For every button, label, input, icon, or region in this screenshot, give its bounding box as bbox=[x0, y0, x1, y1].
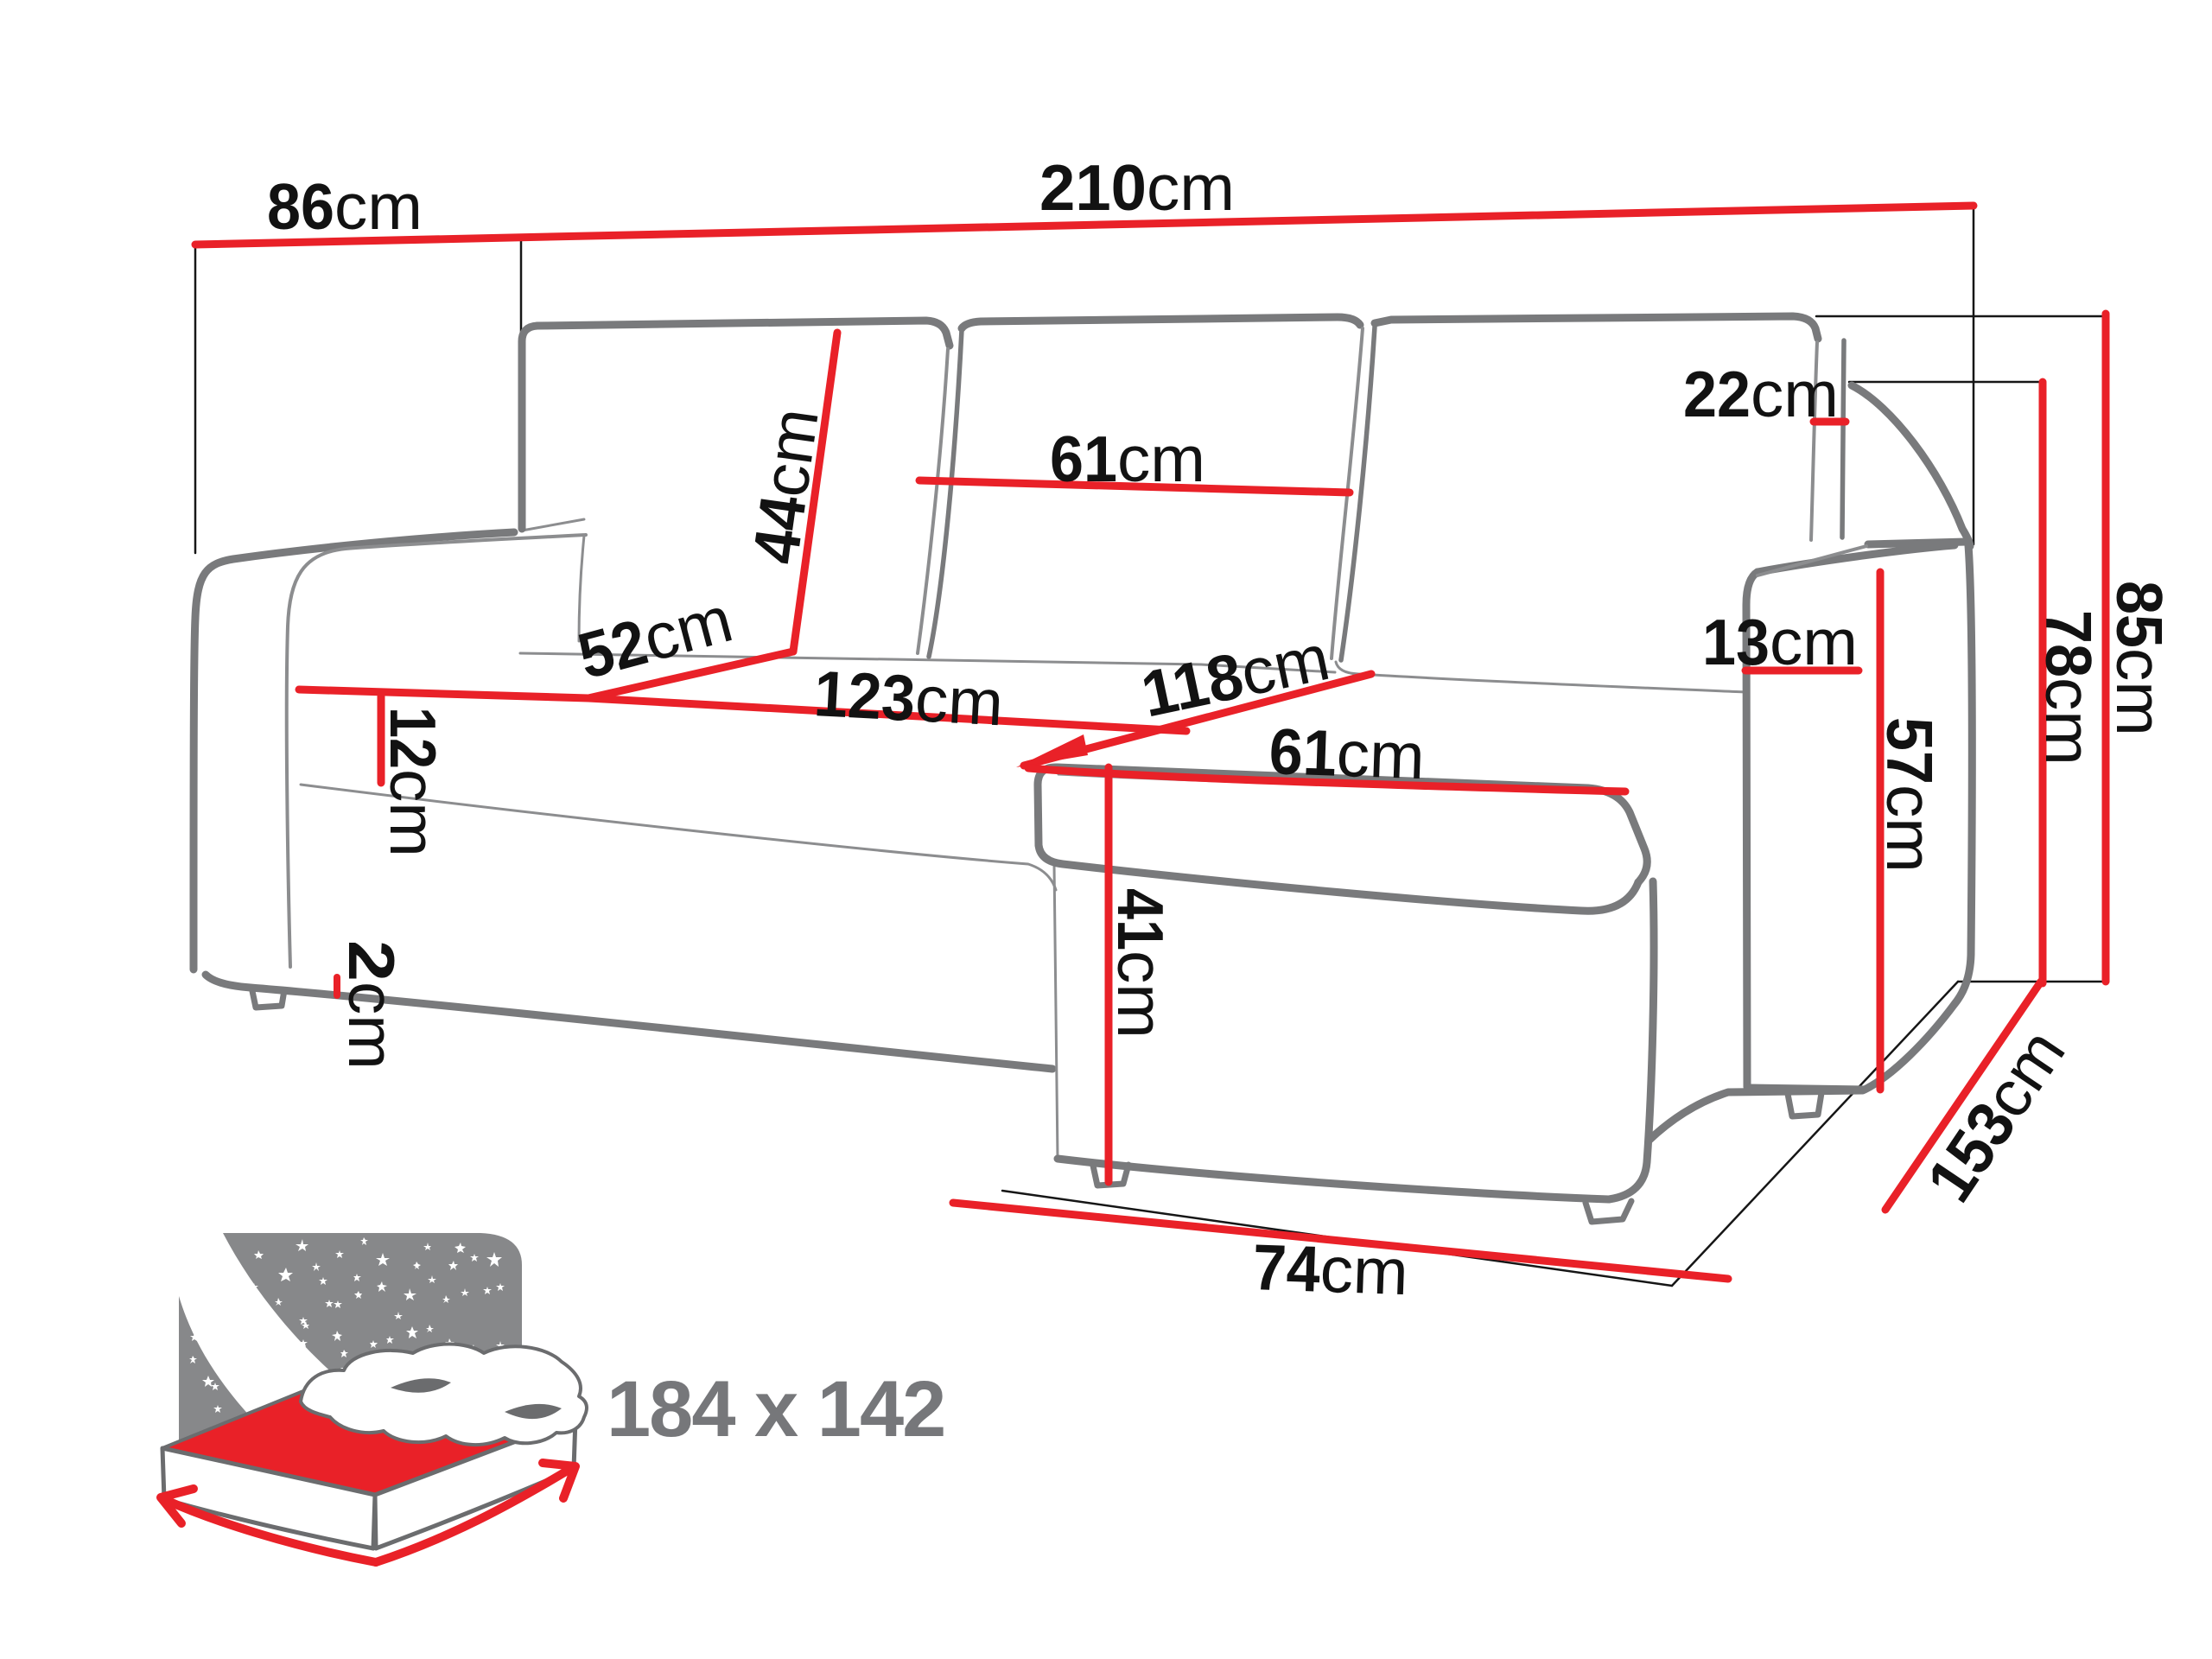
svg-text:86cm: 86cm bbox=[267, 170, 423, 243]
svg-text:61cm: 61cm bbox=[1268, 715, 1426, 792]
svg-text:13cm: 13cm bbox=[1702, 606, 1858, 678]
svg-text:184 x 142: 184 x 142 bbox=[607, 1365, 944, 1453]
svg-text:61cm: 61cm bbox=[1050, 423, 1205, 495]
svg-text:210cm: 210cm bbox=[1039, 151, 1235, 224]
svg-text:85cm: 85cm bbox=[2103, 581, 2176, 736]
svg-text:57cm: 57cm bbox=[1873, 717, 1946, 873]
svg-text:22cm: 22cm bbox=[1683, 358, 1839, 430]
svg-text:41cm: 41cm bbox=[1104, 888, 1177, 1039]
svg-text:2cm: 2cm bbox=[335, 940, 408, 1070]
svg-text:74cm: 74cm bbox=[1251, 1230, 1409, 1308]
svg-text:12cm: 12cm bbox=[377, 707, 449, 857]
svg-text:123cm: 123cm bbox=[812, 657, 1005, 739]
svg-text:78cm: 78cm bbox=[2032, 610, 2105, 766]
